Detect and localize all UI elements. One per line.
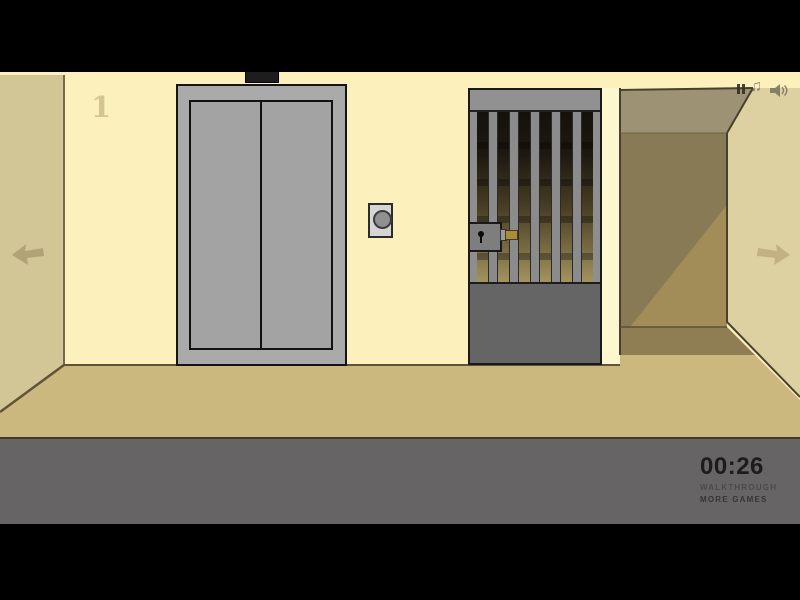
elevator-door-right[interactable] — [260, 100, 333, 350]
pause-icon[interactable] — [742, 84, 745, 94]
gate-bars — [470, 112, 600, 282]
elevator-call-button[interactable] — [373, 210, 392, 229]
gate-lock[interactable] — [468, 222, 502, 252]
gate-gap — [519, 112, 530, 282]
gate-gap — [477, 112, 488, 282]
left-arrow-icon[interactable] — [10, 239, 46, 269]
gate-bottom-panel — [470, 282, 600, 363]
hud-bar — [0, 437, 800, 524]
gate-bar — [530, 112, 540, 282]
elevator-door-left[interactable] — [189, 100, 262, 350]
keyhole-stem — [480, 236, 482, 243]
pause-icon[interactable] — [737, 84, 740, 94]
gate-frame-left — [470, 112, 477, 282]
gate-gap — [540, 112, 551, 282]
gate-bar — [509, 112, 519, 282]
right-arrow-icon[interactable] — [750, 239, 792, 269]
gate-gap — [582, 112, 593, 282]
gate-frame-right — [593, 112, 600, 282]
floor — [0, 355, 800, 437]
timer: 00:26 — [700, 455, 777, 479]
elevator[interactable] — [176, 84, 347, 366]
game-stage: 1 — [0, 0, 800, 600]
gate-bar — [572, 112, 582, 282]
floor-number: 1 — [91, 93, 111, 122]
gate-gap — [498, 112, 509, 282]
music-icon[interactable]: ♫ — [750, 79, 762, 95]
hud-text-block: 00:26 WALKTHROUGH MORE GAMES — [700, 455, 777, 504]
walkthrough-link[interactable]: WALKTHROUGH — [700, 483, 777, 492]
wall-highlight-strip — [600, 88, 620, 365]
letterbox-top — [0, 0, 800, 72]
gate-gap — [561, 112, 572, 282]
gate-bar — [551, 112, 561, 282]
elevator-indicator-panel — [245, 71, 279, 83]
room-scene — [0, 72, 800, 437]
more-games-link[interactable]: MORE GAMES — [700, 495, 777, 504]
call-button-plate — [368, 203, 393, 238]
letterbox-bottom — [0, 524, 800, 600]
latch-bolt[interactable] — [505, 230, 518, 240]
sound-icon[interactable] — [770, 84, 790, 97]
gate-bar — [488, 112, 498, 282]
gate-header — [470, 90, 600, 112]
